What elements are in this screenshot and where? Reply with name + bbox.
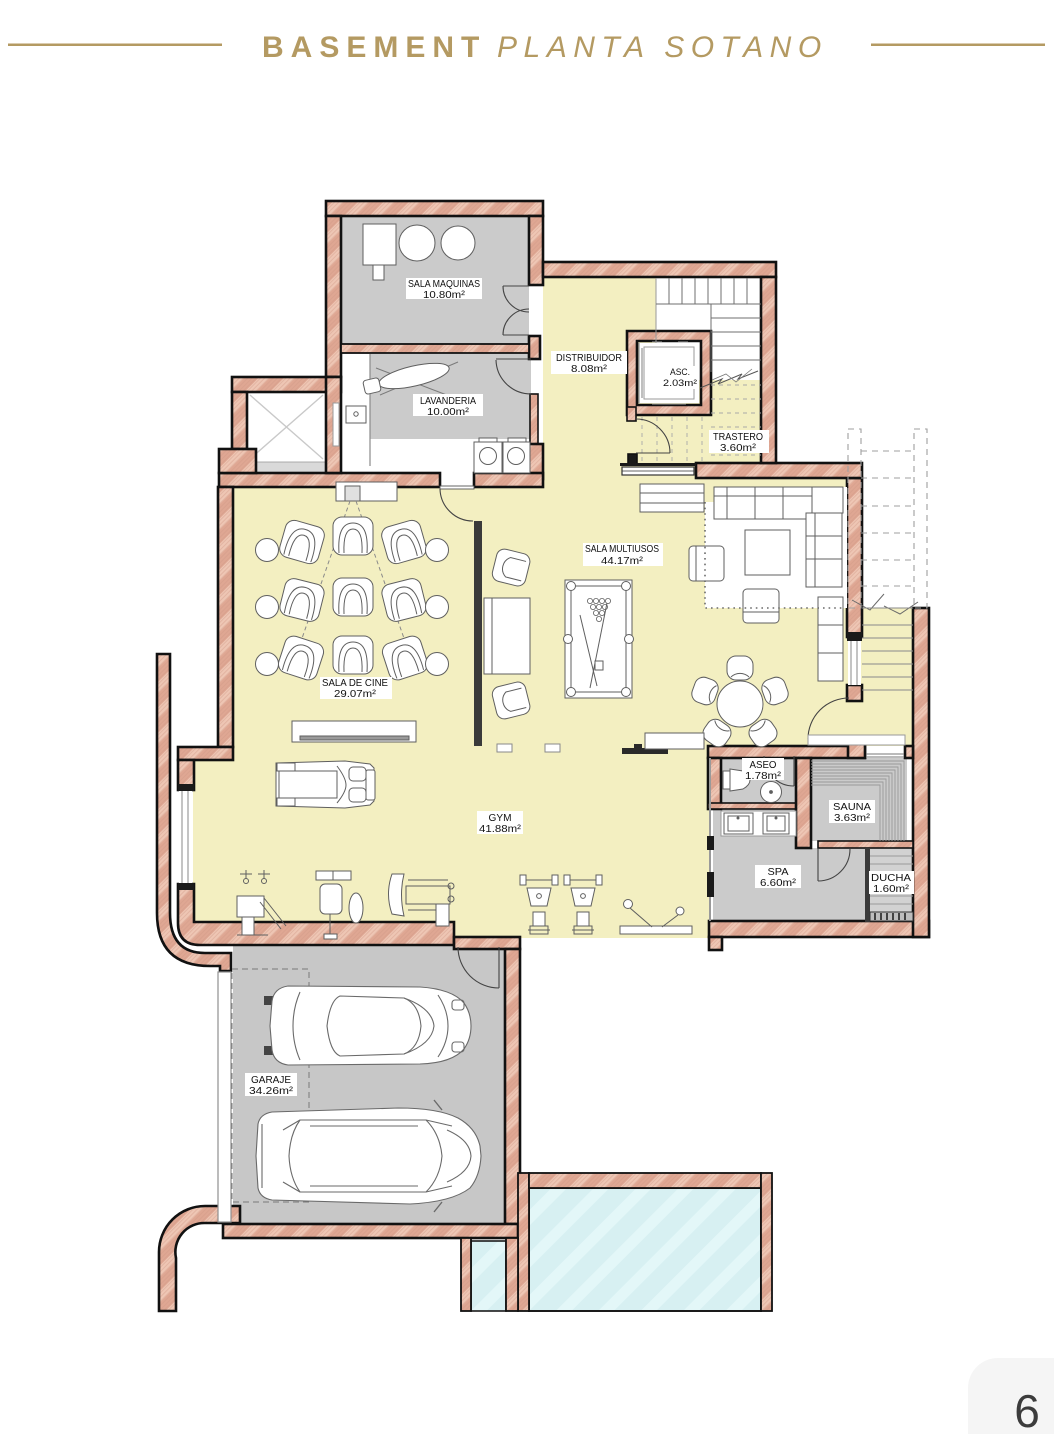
svg-text:44.17m²: 44.17m² <box>601 555 644 567</box>
svg-text:10.00m²: 10.00m² <box>427 406 470 418</box>
svg-text:10.80m²: 10.80m² <box>423 289 466 301</box>
svg-text:34.26m²: 34.26m² <box>249 1085 294 1097</box>
svg-text:3.60m²: 3.60m² <box>720 442 757 454</box>
svg-text:8.08m²: 8.08m² <box>571 363 608 375</box>
svg-text:PLANTA SOTANO: PLANTA SOTANO <box>497 31 828 64</box>
svg-text:1.60m²: 1.60m² <box>873 883 910 895</box>
svg-text:6: 6 <box>1014 1385 1040 1434</box>
svg-text:BASEMENT: BASEMENT <box>262 31 486 64</box>
svg-text:2.03m²: 2.03m² <box>663 378 697 389</box>
svg-text:1.78m²: 1.78m² <box>745 770 782 782</box>
svg-text:41.88m²: 41.88m² <box>479 823 522 835</box>
svg-text:29.07m²: 29.07m² <box>334 688 377 700</box>
svg-text:SALA MULTIUSOS: SALA MULTIUSOS <box>585 543 659 555</box>
svg-text:6.60m²: 6.60m² <box>760 877 797 889</box>
svg-text:3.63m²: 3.63m² <box>834 812 871 824</box>
svg-text:ASC.: ASC. <box>670 367 690 378</box>
